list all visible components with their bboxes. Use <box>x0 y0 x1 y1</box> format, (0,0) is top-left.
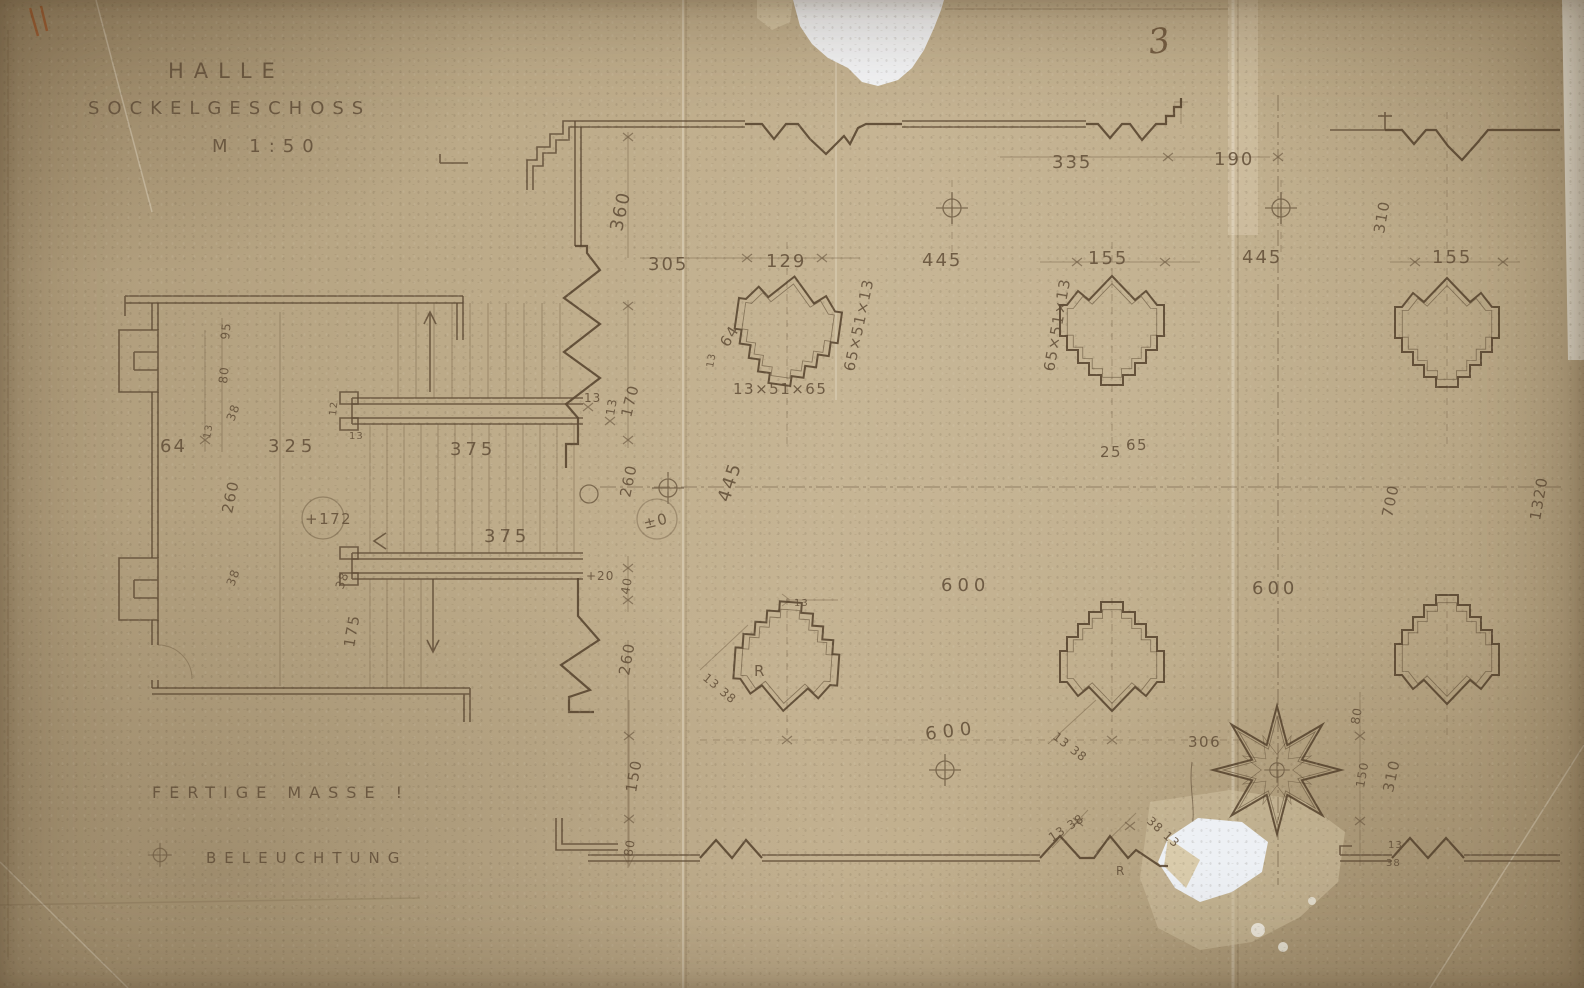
dim-175: 175 <box>340 613 363 649</box>
dim-13-c: 13 <box>202 423 215 439</box>
dim-bwall-13-38: 13 38 <box>1046 811 1087 844</box>
dim-12: 12 <box>328 401 340 417</box>
dim-col1-13: 13 <box>705 352 718 368</box>
dim-1320: 1320 <box>1526 475 1551 522</box>
centerlines <box>600 95 1565 885</box>
axis-circle <box>580 485 598 503</box>
dim-445-b: 445 <box>1242 247 1282 268</box>
dim-260-b: 260 <box>616 463 640 499</box>
dim-600-a: 600 <box>941 575 990 596</box>
dim-13-b: 13 <box>603 397 620 416</box>
legend-lighting-icon <box>148 843 172 867</box>
dim-col1-chain-v: 65×51×13 <box>840 277 877 373</box>
top-tear-flap <box>757 0 793 30</box>
stair-treads <box>370 303 574 688</box>
dim-325: 325 <box>268 436 317 457</box>
stair-direction-arrow-down <box>427 579 439 652</box>
lighting-symbol-icon <box>936 192 968 224</box>
label-col4-r: R <box>754 662 766 680</box>
dim-335: 335 <box>1052 152 1092 173</box>
dim-40: 40 <box>618 576 635 595</box>
dim-129: 129 <box>766 251 806 272</box>
dim-col2-65: 65 <box>1126 436 1148 454</box>
dim-col1-chain-h: 13×51×65 <box>733 380 827 398</box>
dim-155-b: 155 <box>1432 247 1472 268</box>
dim-150: 150 <box>622 758 645 794</box>
dim-155-a: 155 <box>1088 248 1128 269</box>
dim-star-80: 80 <box>1348 706 1365 725</box>
label-bwall-r: R <box>1116 864 1125 878</box>
dim-col5-13-38: 13 38 <box>1050 729 1090 764</box>
dim-80-b: 80 <box>621 838 638 857</box>
dim-190: 190 <box>1214 149 1254 170</box>
lighting-symbol-icon <box>929 754 961 786</box>
dim-plus20: +20 <box>586 569 614 583</box>
dim-13-a: 13 <box>584 391 601 405</box>
dim-600-b: 600 <box>924 718 979 745</box>
level-hall: ±0 <box>642 509 671 533</box>
dim-445-a: 445 <box>922 250 962 271</box>
dim-38-b: 38 <box>224 567 243 588</box>
dim-375-a: 375 <box>450 439 496 460</box>
dim-64: 64 <box>160 436 187 457</box>
title-scale: M 1:50 <box>212 136 322 157</box>
dim-br-13: 13 <box>1388 840 1403 851</box>
legend-finished: FERTIGE MASSE ! <box>152 783 410 802</box>
dim-360: 360 <box>606 189 635 233</box>
dim-260-a: 260 <box>218 479 242 515</box>
hall-walls <box>440 98 1560 866</box>
dim-col2-chain-v: 65×51×13 <box>1040 277 1074 373</box>
plan-drawing: HALLE SOCKELGESCHOSS M 1:50 3 FERTIGE MA… <box>0 0 1584 988</box>
drawing-sheet: HALLE SOCKELGESCHOSS M 1:50 3 FERTIGE MA… <box>0 0 1584 988</box>
column-section-2 <box>1060 276 1164 385</box>
dim-38-a: 38 <box>224 402 243 423</box>
dimension-lines <box>205 98 1520 868</box>
dim-375-b: 375 <box>484 526 530 547</box>
lighting-symbol-icon <box>1264 757 1290 783</box>
dim-260-c: 260 <box>615 641 638 677</box>
legend-lighting: BELEUCHTUNG <box>206 849 407 867</box>
dim-star-150: 150 <box>1353 761 1371 789</box>
lighting-symbol-icon <box>1265 192 1297 224</box>
title-line2: SOCKELGESCHOSS <box>88 98 371 119</box>
dim-95: 95 <box>218 322 234 341</box>
edge-backing-strip <box>1562 0 1584 360</box>
stair-arrow-chevron <box>374 533 386 549</box>
dim-13-d: 13 <box>349 431 364 442</box>
dim-br-38: 38 <box>1386 858 1401 869</box>
dimension-ticks <box>200 133 1508 830</box>
title-line1: HALLE <box>168 59 285 83</box>
dim-80-a: 80 <box>216 366 232 385</box>
corner-pencil-marks <box>30 6 47 36</box>
sheet-number: 3 <box>1146 20 1173 63</box>
dim-310-a: 310 <box>1370 199 1393 235</box>
dim-600-c: 600 <box>1252 578 1298 599</box>
dim-700: 700 <box>1378 483 1402 519</box>
dim-305: 305 <box>648 254 688 275</box>
dim-445-axis: 445 <box>714 460 746 505</box>
dim-170: 170 <box>617 382 642 419</box>
top-tear-hole <box>793 0 944 86</box>
dim-col2-25: 25 <box>1100 443 1122 461</box>
dim-col1-64: 64 <box>716 322 743 350</box>
level-stair: +172 <box>305 510 352 528</box>
dim-306: 306 <box>1188 733 1221 751</box>
dim-col4-13: 13 <box>794 598 809 609</box>
lighting-symbols <box>148 192 1297 867</box>
dim-star-310: 310 <box>1379 758 1403 794</box>
